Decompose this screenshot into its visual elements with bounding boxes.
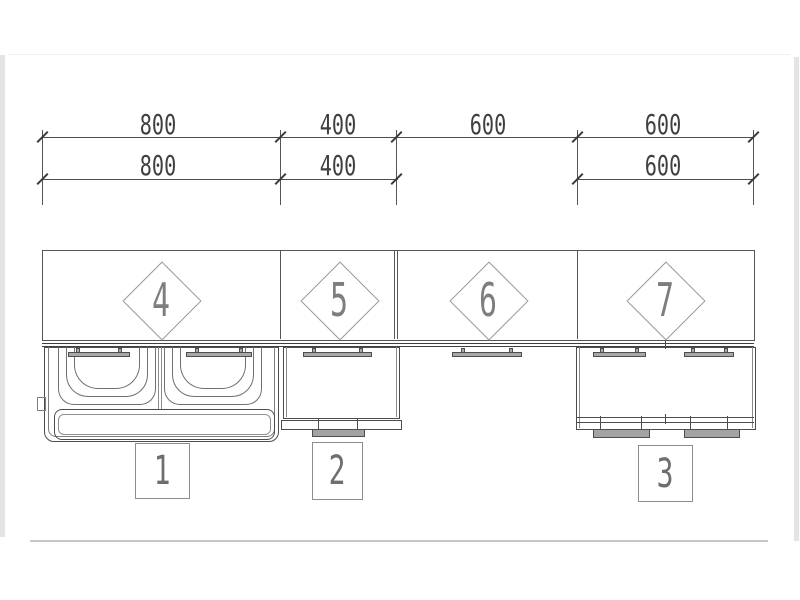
bottom-handle [312, 429, 365, 437]
handle-bar [303, 352, 372, 357]
rail-post [727, 416, 728, 429]
position-number: 1 [154, 451, 171, 491]
position-tag-2: 2 [312, 442, 363, 500]
handle-bar [684, 352, 734, 357]
dim-label: 400 [320, 152, 356, 180]
handle-bar [68, 352, 130, 357]
page-edge-left [0, 55, 5, 537]
page-edge-top [8, 54, 790, 55]
appliance-handle [452, 347, 522, 359]
handle-bar [186, 352, 252, 357]
extension-line [42, 130, 43, 205]
position-number: 2 [329, 451, 346, 491]
page-edge-right [794, 57, 799, 541]
bottom-handle [593, 429, 650, 438]
countertop-edge [42, 343, 754, 344]
door-handle [303, 347, 372, 359]
door-divider-tick [665, 414, 666, 424]
cabinet-number: 4 [152, 277, 170, 323]
cabinet-number: 7 [656, 277, 674, 323]
rail-post [600, 416, 601, 429]
cabinet-divider [394, 250, 395, 339]
handle-bar [593, 352, 646, 357]
sink-bowl-divider [161, 347, 162, 409]
dim-label: 600 [470, 111, 506, 139]
rail-post [690, 416, 691, 429]
position-tag-3: 3 [638, 445, 693, 502]
extension-line [577, 130, 578, 205]
extension-line [280, 130, 281, 205]
rail-post [641, 416, 642, 429]
door-handle [593, 347, 646, 359]
extension-line [753, 130, 754, 205]
door-handle [186, 347, 252, 359]
drawing-canvas: 800 400 600 600 800 400 600 4 5 6 7 [0, 0, 800, 600]
bottom-handle [684, 429, 740, 438]
sink-side-bracket [37, 397, 46, 411]
door-handle [684, 347, 734, 359]
sink-bowl-divider [158, 347, 159, 409]
dim-label: 800 [140, 111, 176, 139]
page-edge-bottom [30, 540, 768, 542]
cabinet-divider [280, 250, 281, 339]
cabinet-number: 6 [479, 277, 497, 323]
handle-bar [452, 352, 522, 357]
dim-label: 400 [320, 111, 356, 139]
cabinet-divider [577, 250, 578, 339]
cabinet-number: 5 [330, 277, 348, 323]
dim-label: 600 [645, 152, 681, 180]
position-number: 3 [657, 454, 674, 494]
door-handle [68, 347, 130, 359]
position-tag-1: 1 [135, 443, 190, 499]
cabinet-divider [397, 250, 398, 339]
dim-label: 600 [645, 111, 681, 139]
sink-front-rail-inner [58, 414, 271, 435]
dim-label: 800 [140, 152, 176, 180]
extension-line [396, 130, 397, 205]
door-divider-tick [665, 341, 666, 349]
